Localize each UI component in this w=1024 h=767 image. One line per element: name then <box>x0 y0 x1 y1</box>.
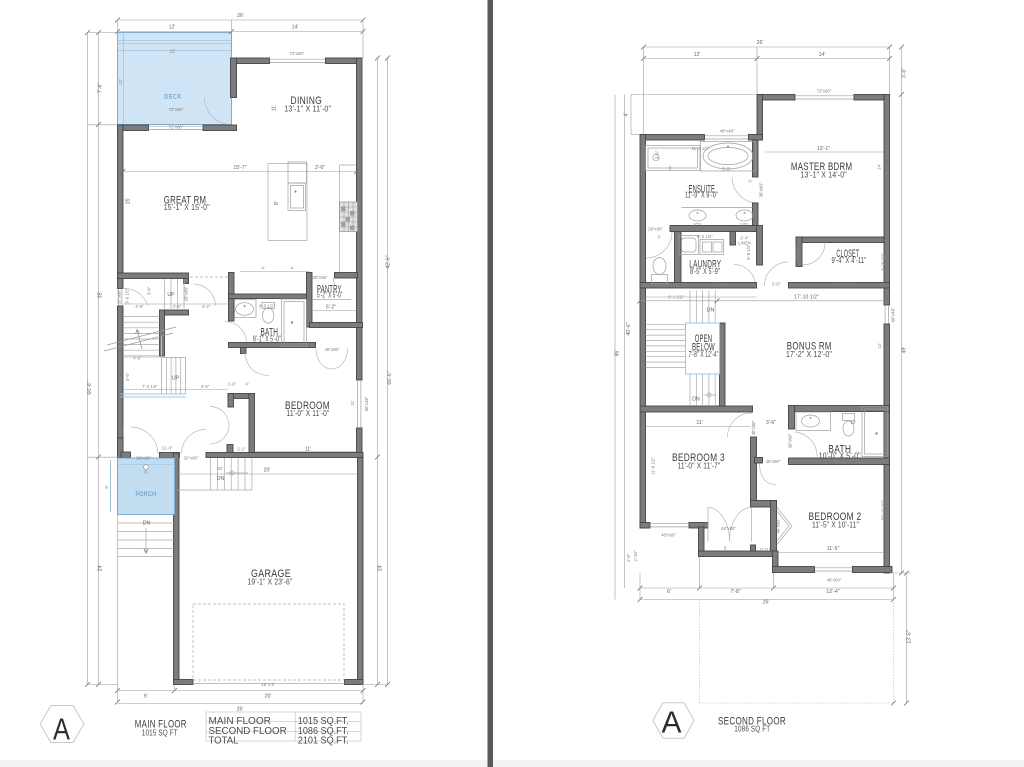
svg-text:20': 20' <box>217 466 223 471</box>
svg-text:3'-6": 3'-6" <box>315 165 325 171</box>
svg-text:7'-6": 7'-6" <box>98 83 104 93</box>
svg-text:19'-1" X 23'-6": 19'-1" X 23'-6" <box>248 578 293 587</box>
svg-text:66'-6": 66'-6" <box>87 381 93 394</box>
svg-text:72"x60": 72"x60" <box>290 51 305 56</box>
svg-text:5'-2": 5'-2" <box>326 305 336 311</box>
svg-text:15': 15' <box>126 198 132 205</box>
svg-text:DN: DN <box>692 397 700 403</box>
svg-text:3'-6": 3'-6" <box>902 68 908 78</box>
svg-text:30"x60": 30"x60" <box>788 433 793 448</box>
svg-text:11': 11' <box>696 420 702 426</box>
svg-text:60"x48": 60"x48" <box>364 396 369 411</box>
svg-text:32"x80": 32"x80" <box>117 289 122 304</box>
svg-text:TOTAL: TOTAL <box>209 735 239 746</box>
svg-text:72"x66": 72"x66" <box>169 107 184 112</box>
svg-text:4'-6": 4'-6" <box>135 304 144 309</box>
svg-text:11'-8 1/2": 11'-8 1/2" <box>692 146 710 151</box>
svg-text:8'-0 1/2": 8'-0 1/2" <box>259 304 275 309</box>
svg-text:7'-3 1/2": 7'-3 1/2" <box>142 384 158 389</box>
svg-text:26': 26' <box>757 40 764 46</box>
svg-text:13'-6": 13'-6" <box>907 630 913 643</box>
svg-text:2'-1": 2'-1" <box>237 447 246 452</box>
svg-text:42'-6": 42'-6" <box>386 255 392 268</box>
svg-text:5'-5": 5'-5" <box>722 167 731 172</box>
svg-text:36"x96": 36"x96" <box>136 456 151 461</box>
svg-text:30"x80": 30"x80" <box>795 247 800 262</box>
svg-text:28"x96": 28"x96" <box>313 275 328 280</box>
svg-text:2'-6": 2'-6" <box>173 304 182 309</box>
svg-text:8': 8' <box>274 201 280 205</box>
svg-text:5': 5' <box>724 546 727 551</box>
svg-text:24': 24' <box>98 565 104 572</box>
svg-text:A: A <box>662 705 682 740</box>
svg-text:DN: DN <box>143 521 151 527</box>
svg-text:12': 12' <box>877 343 882 349</box>
svg-text:4': 4' <box>290 266 293 271</box>
svg-text:28"x80": 28"x80" <box>184 286 189 301</box>
svg-text:72"x60": 72"x60" <box>817 89 832 94</box>
svg-text:5'-2" X 5'-0": 5'-2" X 5'-0" <box>317 290 343 299</box>
svg-text:12': 12' <box>118 79 123 85</box>
svg-text:11'-6 1/2": 11'-6 1/2" <box>651 457 656 475</box>
svg-text:36"x80": 36"x80" <box>766 459 781 464</box>
svg-text:14': 14' <box>819 52 826 58</box>
svg-text:28"x80": 28"x80" <box>648 227 663 232</box>
svg-text:15'-1" X 15'-0": 15'-1" X 15'-0" <box>164 203 210 212</box>
svg-text:60"x48": 60"x48" <box>891 307 896 322</box>
svg-text:35': 35' <box>98 292 104 299</box>
svg-text:1086 SQ FT: 1086 SQ FT <box>734 725 770 734</box>
svg-text:3'-9 1/2": 3'-9 1/2" <box>125 288 130 304</box>
svg-text:11'-3": 11'-3" <box>162 446 173 451</box>
svg-text:50'-10 1/2": 50'-10 1/2" <box>881 499 886 520</box>
svg-text:3'-6": 3'-6" <box>772 282 781 287</box>
svg-text:3'-6": 3'-6" <box>655 150 660 159</box>
svg-text:4'-6": 4'-6" <box>133 356 142 361</box>
svg-text:48"x80": 48"x80" <box>776 518 781 533</box>
svg-text:32"x96": 32"x96" <box>184 456 199 461</box>
svg-text:4': 4' <box>245 382 248 387</box>
svg-text:24': 24' <box>378 565 384 572</box>
svg-text:2101 SQ.FT.: 2101 SQ.FT. <box>298 735 349 746</box>
svg-text:14': 14' <box>292 25 299 31</box>
svg-text:48"x60": 48"x60" <box>661 533 676 538</box>
svg-text:3'-6": 3'-6" <box>125 372 130 381</box>
svg-text:26': 26' <box>763 600 770 606</box>
svg-text:1015 SQ FT: 1015 SQ FT <box>142 728 178 737</box>
svg-text:26': 26' <box>237 707 244 713</box>
svg-text:49': 49' <box>902 347 908 354</box>
svg-text:8'-1" X 5'-0": 8'-1" X 5'-0" <box>253 334 281 343</box>
svg-text:10': 10' <box>850 420 856 425</box>
svg-text:15'-7": 15'-7" <box>233 165 246 171</box>
svg-text:48"x48": 48"x48" <box>720 129 735 134</box>
svg-text:1'-6": 1'-6" <box>228 382 237 387</box>
svg-text:PORCH: PORCH <box>136 492 157 498</box>
svg-text:11'-5" X 10'-11": 11'-5" X 10'-11" <box>812 521 859 530</box>
svg-text:11'-0" X 11'-0": 11'-0" X 11'-0" <box>287 409 330 418</box>
svg-text:30"x80": 30"x80" <box>759 182 764 197</box>
svg-text:48"x96": 48"x96" <box>325 347 340 352</box>
svg-text:12': 12' <box>169 25 176 31</box>
svg-text:11': 11' <box>350 400 355 405</box>
svg-text:66'-6": 66'-6" <box>387 371 393 384</box>
svg-text:13'-1" X 14'-0": 13'-1" X 14'-0" <box>800 171 847 180</box>
svg-text:2'-11": 2'-11" <box>760 547 771 552</box>
svg-text:17'-2" X 12'-0": 17'-2" X 12'-0" <box>786 350 832 359</box>
svg-text:8'-5" X 5'-9": 8'-5" X 5'-9" <box>690 267 720 276</box>
svg-text:6': 6' <box>667 589 671 595</box>
svg-text:DN: DN <box>217 476 225 482</box>
svg-text:4'-10 1/2": 4'-10 1/2" <box>881 252 886 271</box>
svg-text:DECK: DECK <box>164 94 182 101</box>
svg-text:1'-8": 1'-8" <box>626 553 631 562</box>
svg-text:7'-8": 7'-8" <box>730 589 740 595</box>
svg-text:11'-0" X 11'-7": 11'-0" X 11'-7" <box>678 461 721 470</box>
svg-text:13'-1": 13'-1" <box>817 146 830 152</box>
svg-text:11': 11' <box>272 105 278 111</box>
svg-text:11'-5": 11'-5" <box>827 546 840 552</box>
svg-text:6'-4": 6'-4" <box>120 427 125 436</box>
svg-text:13'-1" X 11'-0": 13'-1" X 11'-0" <box>284 104 331 113</box>
svg-text:6': 6' <box>144 694 148 700</box>
svg-text:A: A <box>53 712 70 747</box>
svg-text:UP: UP <box>167 292 175 298</box>
svg-text:40'-6": 40'-6" <box>626 322 632 335</box>
svg-text:72"x60": 72"x60" <box>169 124 184 129</box>
svg-text:3'-6": 3'-6" <box>147 286 152 295</box>
svg-text:UP: UP <box>172 376 180 382</box>
svg-text:7'-8" X 12'-4": 7'-8" X 12'-4" <box>689 350 719 359</box>
svg-text:VTY: VTY <box>693 222 701 227</box>
svg-text:17'-10 1/2": 17'-10 1/2" <box>794 295 819 301</box>
svg-text:11'-9" X 9'-0": 11'-9" X 9'-0" <box>685 190 718 199</box>
svg-text:VTY: VTY <box>740 222 748 227</box>
svg-text:10'-0" X 5'-0": 10'-0" X 5'-0" <box>819 452 861 461</box>
svg-text:9'-2 1/2": 9'-2 1/2" <box>697 234 713 239</box>
svg-text:48"x60": 48"x60" <box>827 578 842 583</box>
svg-text:9'-4" X 4'-11": 9'-4" X 4'-11" <box>832 256 867 265</box>
svg-text:12': 12' <box>170 48 176 53</box>
svg-text:9'-3 1/2": 9'-3 1/2" <box>836 282 852 287</box>
svg-text:4'-2": 4'-2" <box>202 304 211 309</box>
svg-text:VTY: VTY <box>809 407 817 412</box>
svg-text:14': 14' <box>877 164 882 170</box>
svg-text:5'-8 1/2": 5'-8 1/2" <box>746 244 751 260</box>
svg-text:12': 12' <box>694 52 701 58</box>
svg-text:30"x80": 30"x80" <box>751 420 756 435</box>
svg-text:4': 4' <box>261 266 264 271</box>
svg-text:48"x80": 48"x80" <box>721 526 736 531</box>
svg-text:9': 9' <box>748 179 753 182</box>
svg-text:4'-5": 4'-5" <box>201 384 210 389</box>
svg-text:5': 5' <box>771 520 776 523</box>
svg-text:3'-6": 3'-6" <box>766 420 776 426</box>
svg-text:5': 5' <box>669 166 672 171</box>
svg-text:12'-4": 12'-4" <box>826 589 839 595</box>
svg-text:6': 6' <box>144 470 147 475</box>
svg-text:45': 45' <box>615 350 621 357</box>
svg-text:20': 20' <box>264 468 271 474</box>
svg-text:DN: DN <box>707 308 715 314</box>
svg-text:3': 3' <box>657 235 660 240</box>
svg-text:8'-5": 8'-5" <box>713 282 722 287</box>
svg-text:16' x 8': 16' x 8' <box>261 682 275 687</box>
svg-text:2'-10": 2'-10" <box>633 550 638 561</box>
svg-text:20': 20' <box>265 694 272 700</box>
svg-text:6': 6' <box>104 485 109 488</box>
svg-text:26': 26' <box>237 13 244 19</box>
